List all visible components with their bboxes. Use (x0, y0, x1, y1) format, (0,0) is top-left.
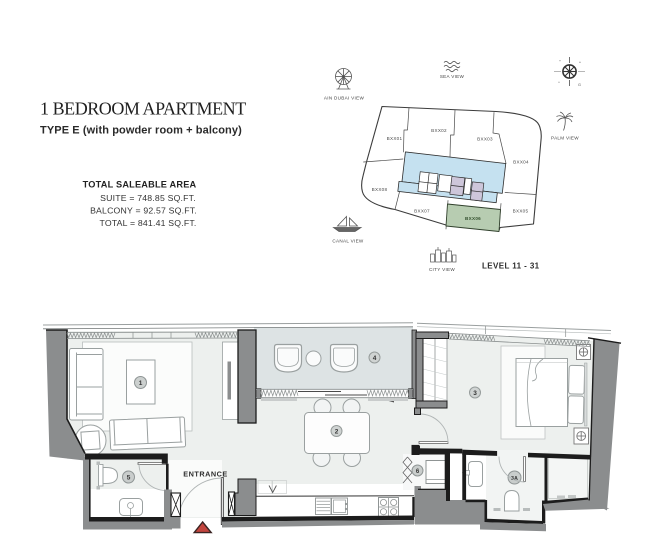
svg-text:PALM VIEW: PALM VIEW (551, 136, 579, 141)
svg-text:*: * (559, 60, 561, 64)
svg-text:*: * (558, 81, 560, 85)
svg-text:G: G (578, 83, 581, 87)
svg-text:2: 2 (335, 429, 339, 436)
svg-text:AIN DUBAI VIEW: AIN DUBAI VIEW (324, 96, 365, 101)
svg-text:TYPE E (with powder room + bal: TYPE E (with powder room + balcony) (40, 125, 242, 137)
svg-text:CANAL VIEW: CANAL VIEW (332, 239, 364, 244)
svg-text:1 BEDROOM APARTMENT: 1 BEDROOM APARTMENT (40, 99, 246, 119)
svg-text:ENTRANCE: ENTRANCE (183, 470, 228, 479)
svg-text:LEVEL 11 - 31: LEVEL 11 - 31 (482, 262, 540, 271)
svg-text:5: 5 (127, 475, 131, 482)
svg-text:+: + (579, 61, 582, 65)
svg-text:BXX06: BXX06 (465, 216, 481, 221)
svg-text:1: 1 (139, 380, 143, 387)
svg-text:BXX01: BXX01 (387, 136, 403, 141)
svg-text:BXX08: BXX08 (372, 187, 388, 192)
svg-text:BALCONY = 92.57 SQ.FT.: BALCONY = 92.57 SQ.FT. (90, 205, 197, 215)
svg-text:BXX07: BXX07 (414, 209, 430, 214)
svg-text:TOTAL = 841.41 SQ.FT.: TOTAL = 841.41 SQ.FT. (100, 218, 197, 228)
svg-text:SEA VIEW: SEA VIEW (440, 74, 465, 79)
svg-text:BXX02: BXX02 (431, 128, 447, 133)
svg-text:TOTAL SALEABLE AREA: TOTAL SALEABLE AREA (83, 180, 197, 190)
svg-text:CITY VIEW: CITY VIEW (429, 267, 455, 272)
svg-text:BXX03: BXX03 (477, 137, 493, 142)
svg-text:BXX05: BXX05 (513, 209, 529, 214)
svg-text:SUITE = 748.85 SQ.FT.: SUITE = 748.85 SQ.FT. (100, 193, 196, 203)
svg-text:3: 3 (473, 390, 477, 397)
svg-text:4: 4 (373, 355, 377, 362)
svg-text:BXX04: BXX04 (513, 160, 529, 165)
